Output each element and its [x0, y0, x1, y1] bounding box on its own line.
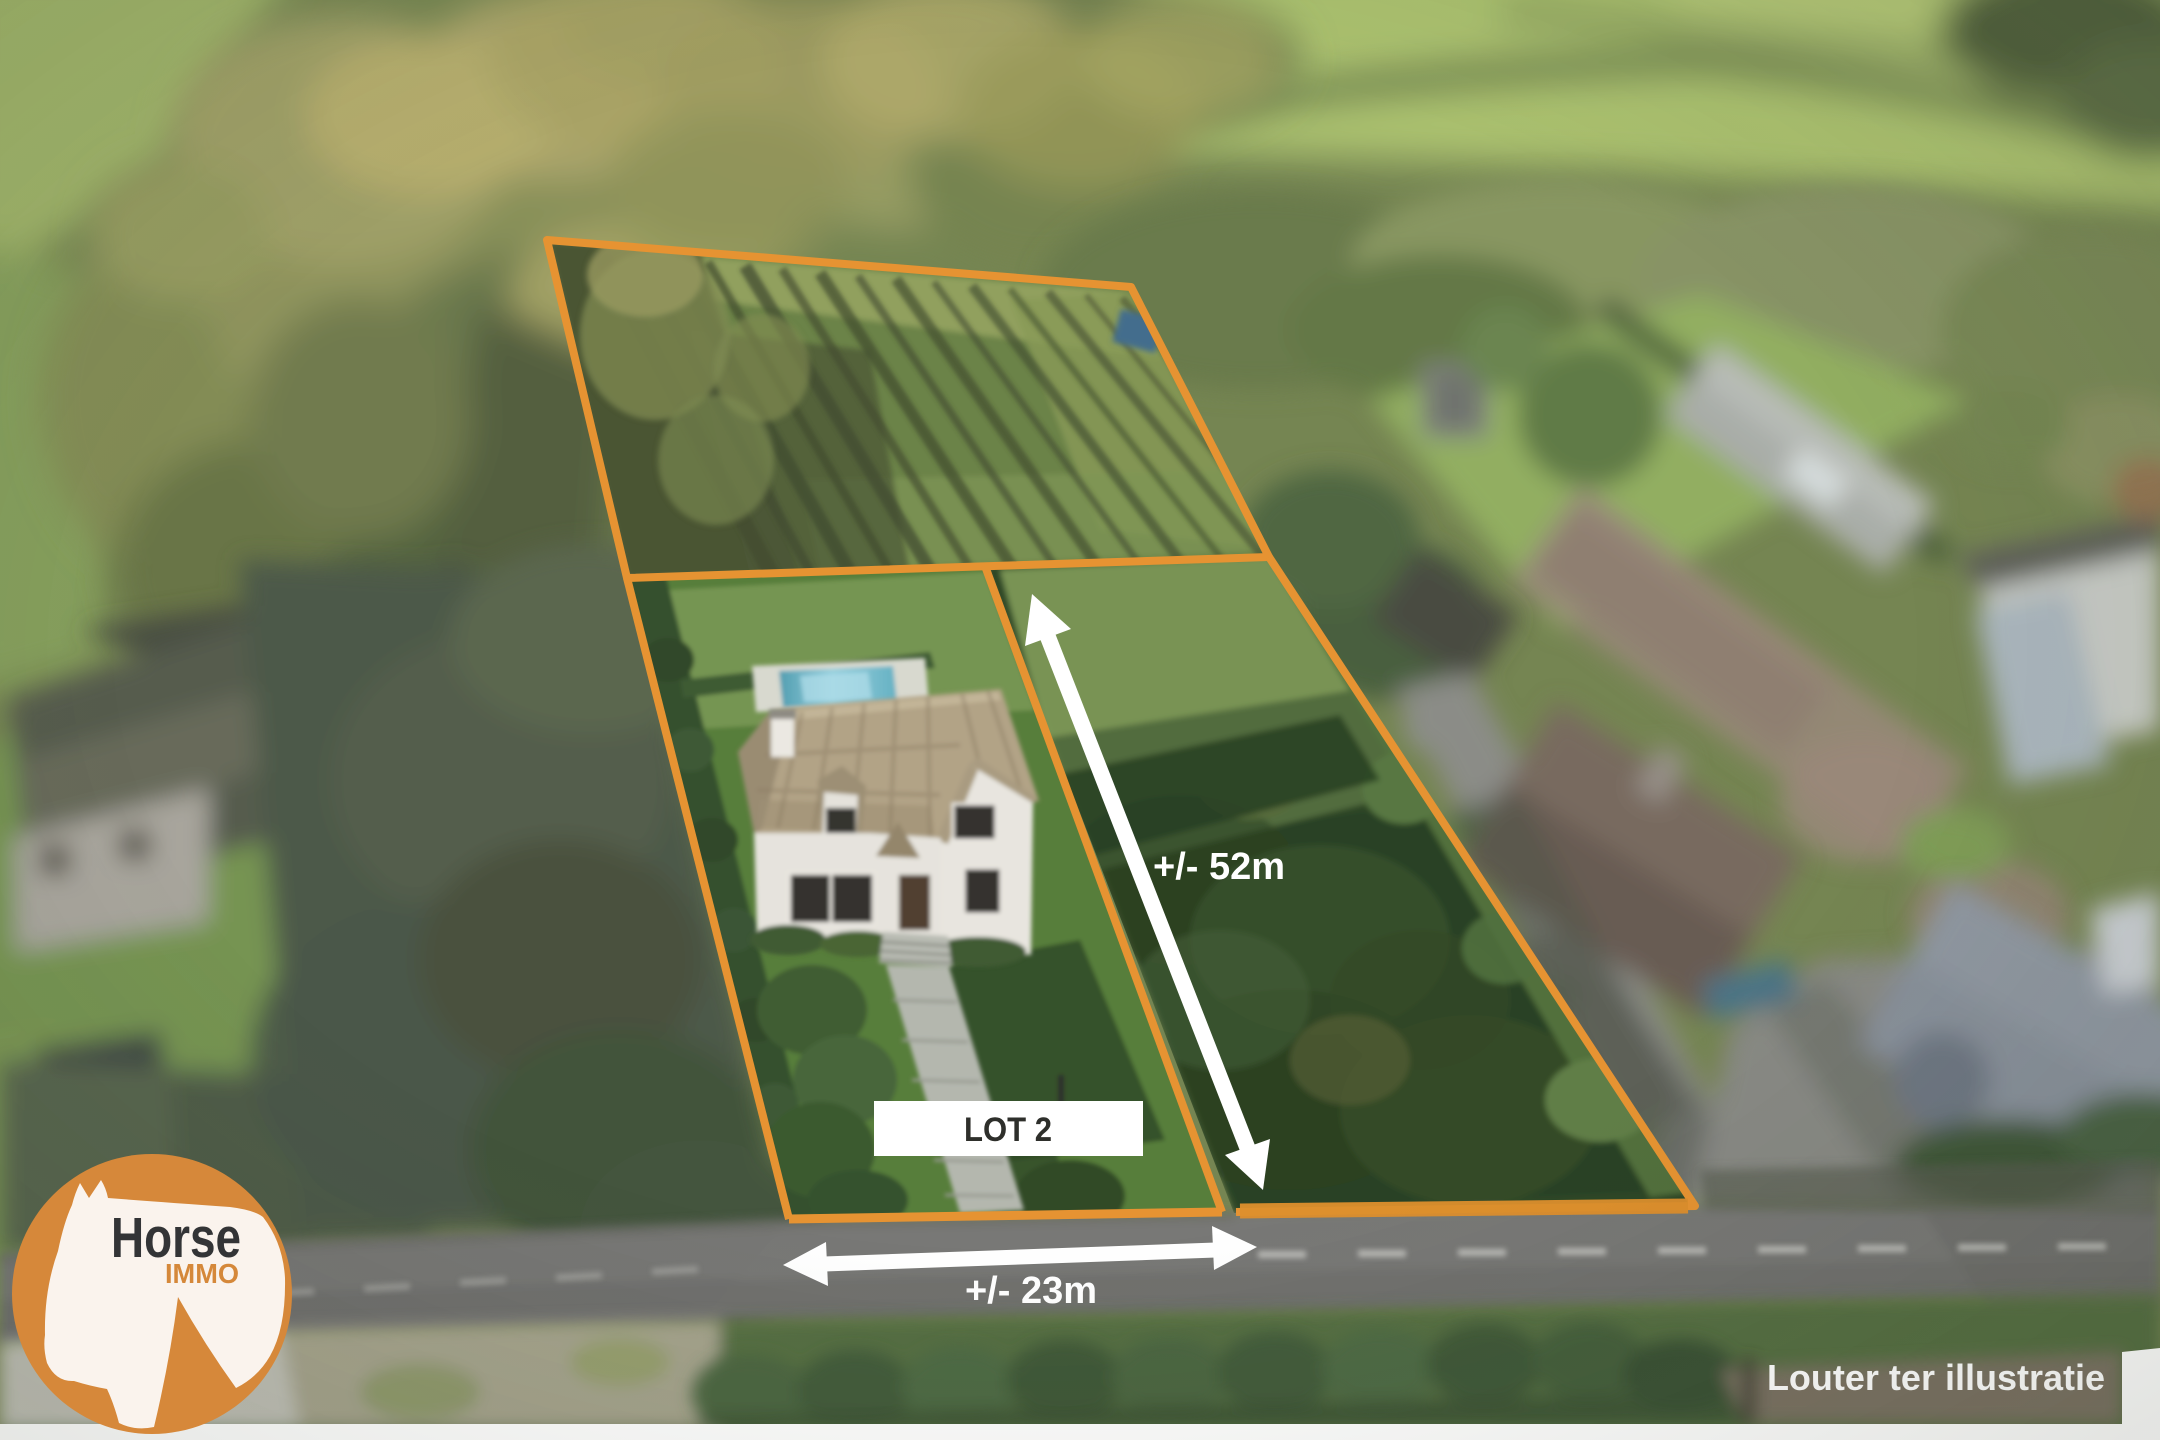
- svg-text:IMMO: IMMO: [165, 1258, 239, 1289]
